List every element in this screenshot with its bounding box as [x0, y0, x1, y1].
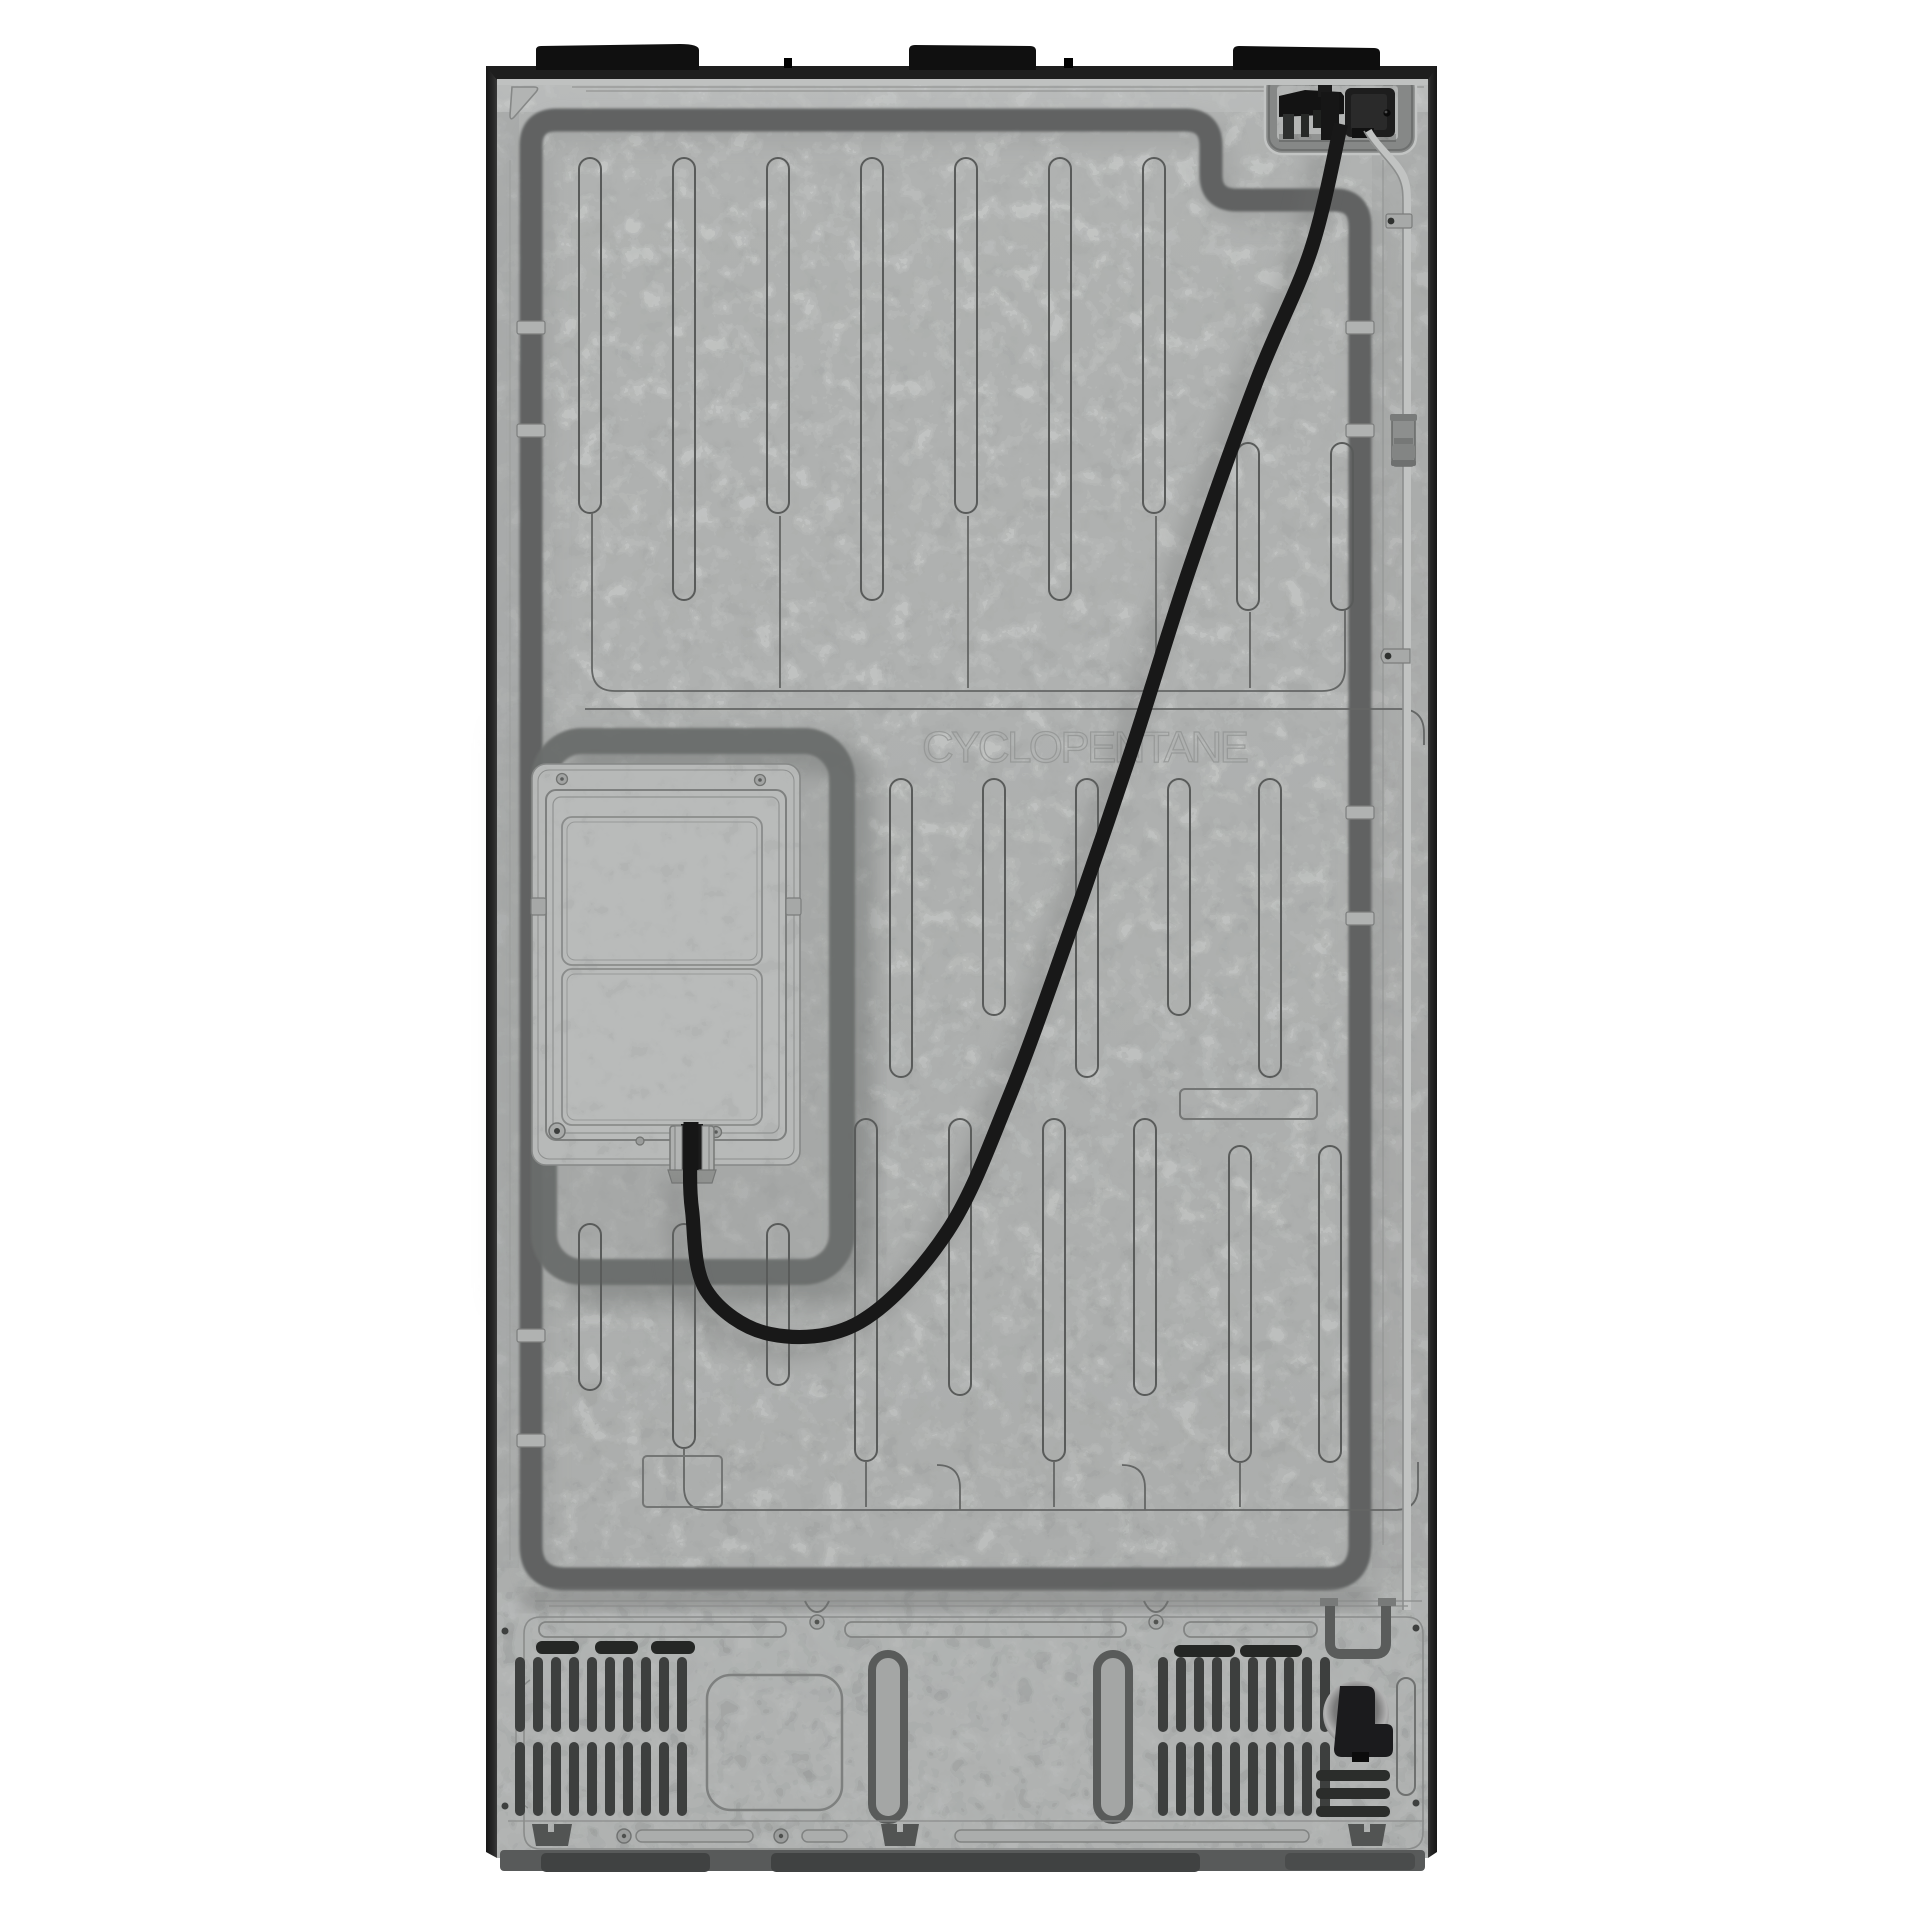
svg-text:CYCLOPENTANE: CYCLOPENTANE: [922, 723, 1252, 772]
